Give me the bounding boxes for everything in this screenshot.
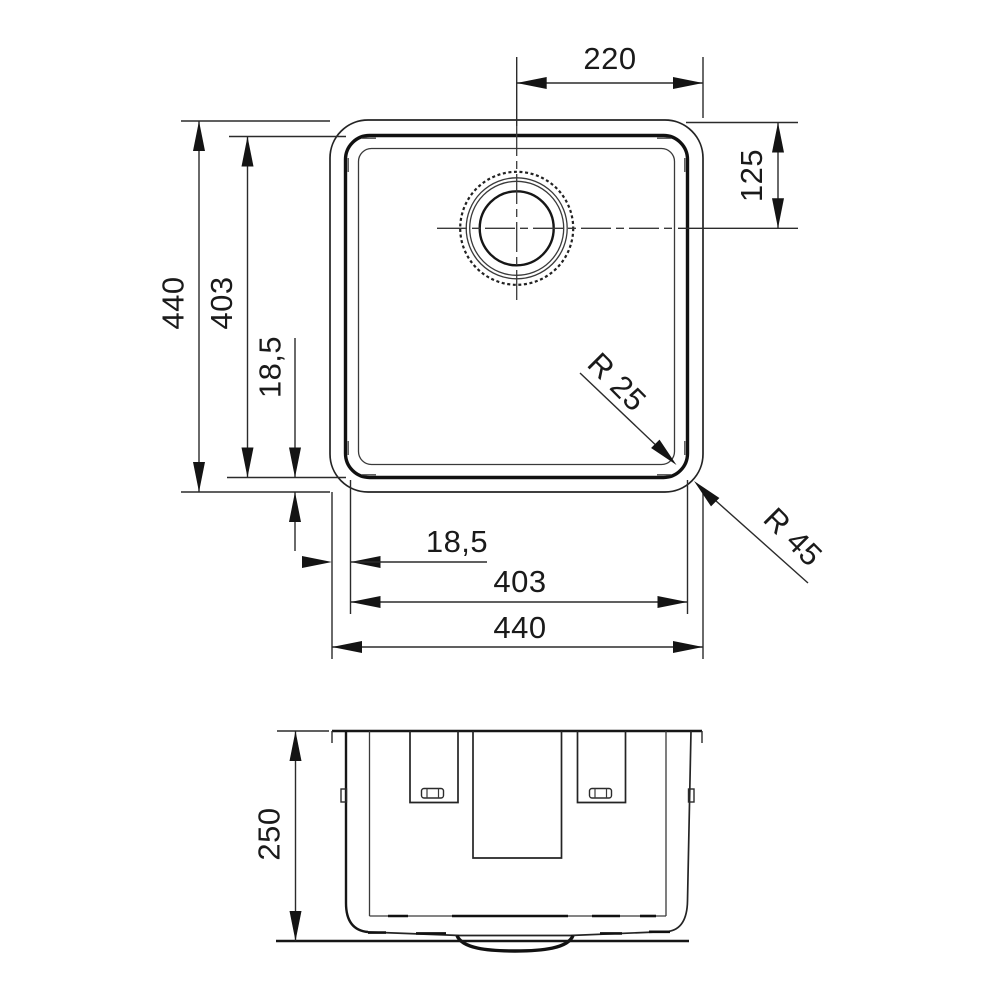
- section-dashes: [368, 916, 670, 933]
- bracket-slot-left: [422, 789, 444, 799]
- dim-label-125: 125: [734, 149, 769, 202]
- dim-403-left: 403: [204, 137, 346, 478]
- section-right-wall: [668, 731, 691, 932]
- bracket-slot-right: [590, 789, 612, 799]
- dim-125-right: 125: [678, 123, 798, 229]
- technical-drawing-canvas: 220 125 440 403 18,5: [0, 0, 992, 992]
- mounting-bracket-right: [578, 731, 626, 803]
- dim-label-220: 220: [583, 41, 636, 76]
- dim-label-18-5v: 18,5: [253, 336, 288, 398]
- dim-18-5-bottom: 18,5: [302, 524, 488, 568]
- dim-label-18-5h: 18,5: [426, 524, 488, 559]
- dim-label-440v: 440: [156, 276, 191, 329]
- section-drain-housing: [473, 731, 562, 858]
- sink-dimension-drawing: 220 125 440 403 18,5: [0, 0, 992, 992]
- mounting-bracket-left: [410, 731, 458, 803]
- leader-r45: R 45: [694, 481, 829, 583]
- leader-r25: R 25: [580, 346, 677, 465]
- dim-label-403h: 403: [493, 564, 546, 599]
- dim-label-250: 250: [252, 807, 287, 860]
- section-view: [276, 731, 702, 951]
- dim-label-r45: R 45: [757, 501, 829, 573]
- dim-label-440h: 440: [493, 610, 546, 645]
- dim-250-depth: 250: [252, 731, 330, 941]
- dim-403-bottom: 403: [351, 480, 688, 614]
- dim-220-top: 220: [517, 41, 703, 126]
- drain-hole: [437, 126, 672, 303]
- dim-18-5-left: 18,5: [253, 336, 302, 551]
- section-drain-boss: [457, 936, 573, 952]
- dim-440-left: 440: [156, 121, 331, 492]
- section-bottom-edge: [368, 932, 668, 936]
- dim-label-403v: 403: [204, 276, 239, 329]
- section-left-wall: [346, 731, 368, 932]
